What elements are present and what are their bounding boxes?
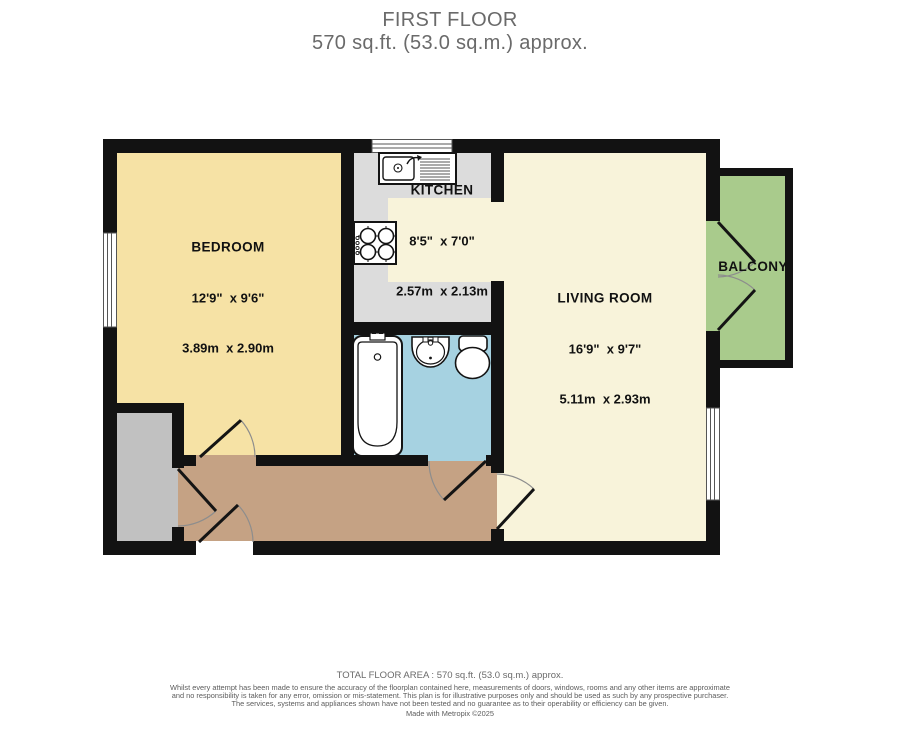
stove	[354, 222, 396, 264]
bathroom-door-opening-bottom	[428, 461, 486, 466]
floorplan-graphic	[0, 0, 900, 729]
balcony-label: BALCONY	[718, 224, 788, 311]
kitchen-label: KITCHEN 8'5" x 7'0" 2.57m x 2.13m	[396, 147, 488, 335]
bedroom-window	[104, 233, 117, 327]
bedroom-name: BEDROOM	[182, 240, 274, 255]
kitchen-name: KITCHEN	[396, 183, 488, 198]
total-area-text: TOTAL FLOOR AREA : 570 sq.ft. (53.0 sq.m…	[0, 670, 900, 682]
toilet	[456, 336, 490, 379]
disclaimer-text: Whilst every attempt has been made to en…	[170, 684, 730, 709]
kitchen-dims-metric: 2.57m x 2.13m	[396, 284, 488, 299]
living-room-dims-metric: 5.11m x 2.93m	[557, 392, 652, 407]
bathroom-door-opening-top	[428, 455, 486, 461]
store-room-floor	[117, 413, 172, 541]
credit-text: Made with Metropix ©2025	[0, 710, 900, 718]
hall-living-opening-left	[491, 473, 497, 529]
balcony-name: BALCONY	[718, 260, 788, 275]
living-room-label: LIVING ROOM 16'9" x 9'7" 5.11m x 2.93m	[557, 255, 652, 443]
bedroom-label: BEDROOM 12'9" x 9'6" 3.89m x 2.90m	[182, 204, 274, 392]
floorplan-page: FIRST FLOOR 570 sq.ft. (53.0 sq.m.) appr…	[0, 0, 900, 729]
footer-block: TOTAL FLOOR AREA : 570 sq.ft. (53.0 sq.m…	[0, 670, 900, 718]
store-door-opening-left	[172, 468, 178, 527]
hallway-floor	[184, 466, 491, 541]
bedroom-dims-imperial: 12'9" x 9'6"	[182, 291, 274, 306]
bedroom-dims-metric: 3.89m x 2.90m	[182, 341, 274, 356]
living-room-name: LIVING ROOM	[557, 291, 652, 306]
kitchen-dims-imperial: 8'5" x 7'0"	[396, 234, 488, 249]
living-room-window	[707, 408, 720, 500]
floor-plan: BEDROOM 12'9" x 9'6" 3.89m x 2.90m KITCH…	[0, 0, 900, 729]
bedroom-door-opening	[196, 455, 256, 466]
living-room-dims-imperial: 16'9" x 9'7"	[557, 342, 652, 357]
bathtub	[353, 331, 402, 456]
kitchen-living-opening	[491, 202, 504, 281]
